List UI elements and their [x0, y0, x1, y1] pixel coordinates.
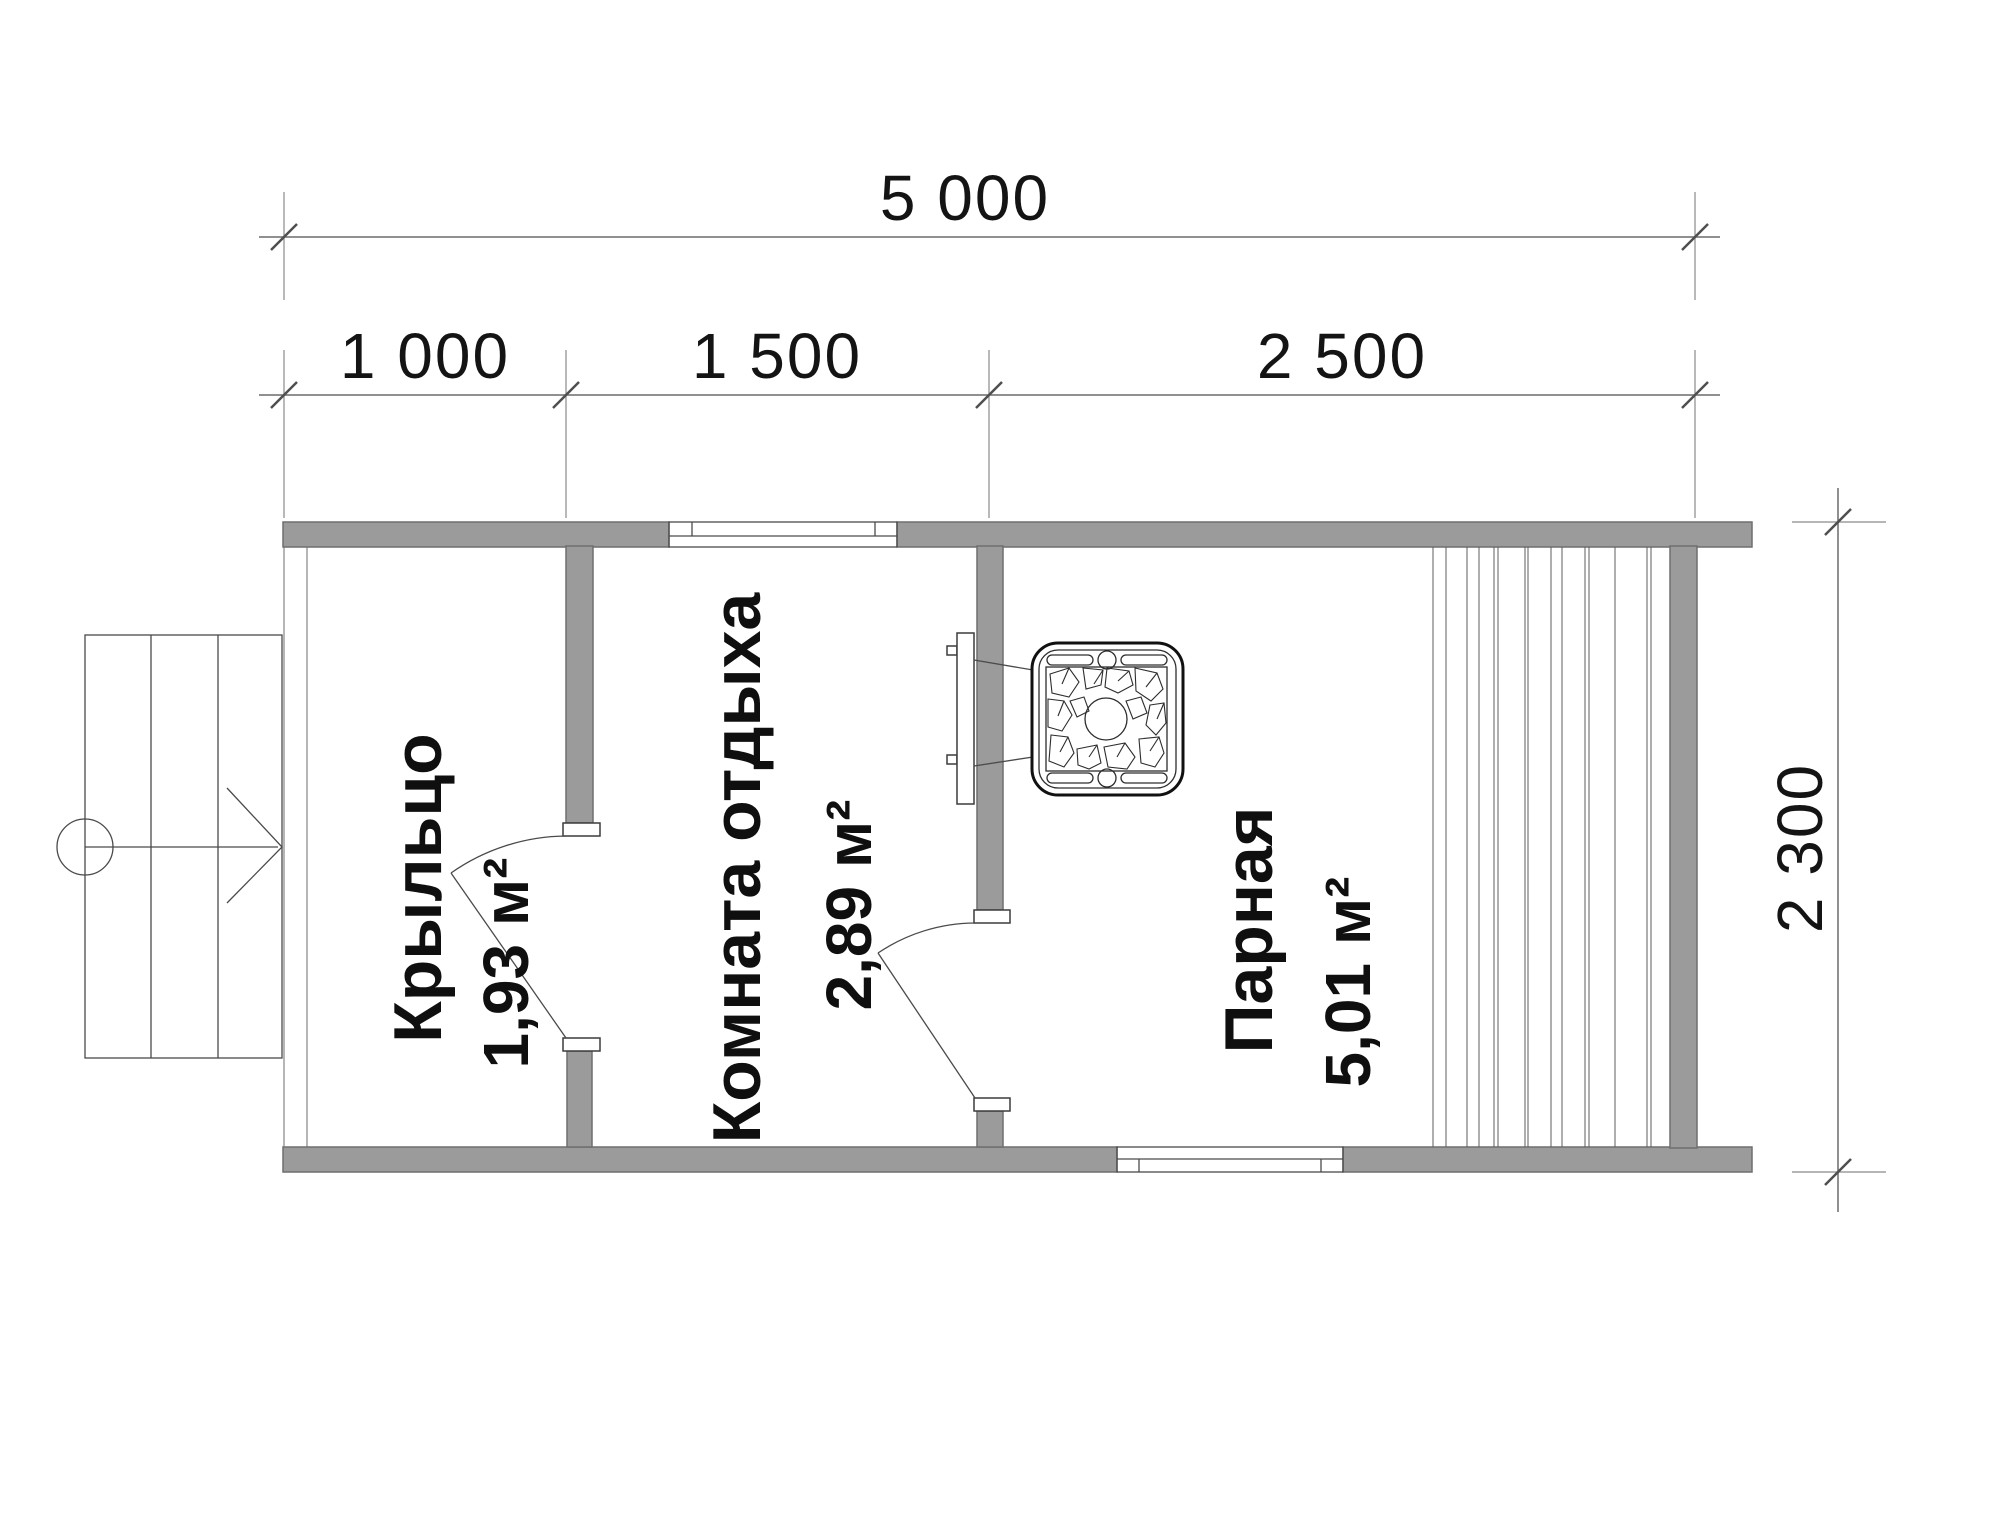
door-jamb — [974, 1098, 1010, 1111]
wall-top-left — [283, 522, 669, 547]
floor-plan-drawing: 5 000 1 000 1 500 2 500 2 300 — [0, 0, 2000, 1538]
dimension-label-segment2: 1 500 — [692, 320, 862, 392]
wall-bottom-right — [1343, 1147, 1752, 1172]
room-area-porch: 1,93 м² — [470, 858, 542, 1069]
steam-room-benches — [1433, 547, 1651, 1147]
floor-plan-canvas: 5 000 1 000 1 500 2 500 2 300 — [0, 0, 2000, 1538]
door-jamb — [563, 1038, 600, 1051]
dimension-segments: 1 000 1 500 2 500 — [259, 320, 1720, 518]
walls — [283, 522, 1752, 1172]
partition-rest-steam-stub — [977, 1111, 1003, 1147]
dimension-label-segment3: 2 500 — [1257, 320, 1427, 392]
dimension-height: 2 300 — [1764, 488, 1886, 1212]
door-swing-arc — [878, 923, 975, 953]
window-frame — [669, 522, 897, 547]
dimension-label-segment1: 1 000 — [340, 320, 510, 392]
partition-rest-steam — [977, 546, 1003, 910]
partition-porch-rest — [566, 546, 593, 823]
room-labels: Крыльцо 1,93 м² Комната отдыха 2,89 м² П… — [380, 592, 1384, 1144]
stove-body — [1032, 643, 1183, 795]
dimension-label-height: 2 300 — [1764, 763, 1836, 933]
room-area-rest: 2,89 м² — [813, 800, 885, 1011]
entrance-arrow-icon — [227, 788, 282, 903]
porch-steps — [57, 635, 282, 1058]
stove-mount-nub — [947, 646, 957, 655]
door-jamb — [974, 910, 1010, 923]
dimension-total-width: 5 000 — [259, 162, 1720, 300]
wall-bottom-left — [283, 1147, 1117, 1172]
room-name-porch: Крыльцо — [380, 733, 456, 1042]
dimension-label-total: 5 000 — [880, 162, 1050, 234]
stove-heat-shield — [957, 633, 974, 804]
wall-right — [1670, 546, 1697, 1148]
door-leaf — [878, 953, 975, 1098]
door-jamb — [563, 823, 600, 836]
room-area-steam: 5,01 м² — [1312, 877, 1384, 1088]
window-top — [669, 522, 897, 547]
stove-mount-nub — [947, 755, 957, 764]
room-name-rest: Комната отдыха — [699, 592, 775, 1144]
wall-top-right — [897, 522, 1752, 547]
partition-porch-rest-stub — [567, 1051, 592, 1147]
room-name-steam: Парная — [1211, 807, 1287, 1054]
window-bottom — [1117, 1147, 1343, 1172]
